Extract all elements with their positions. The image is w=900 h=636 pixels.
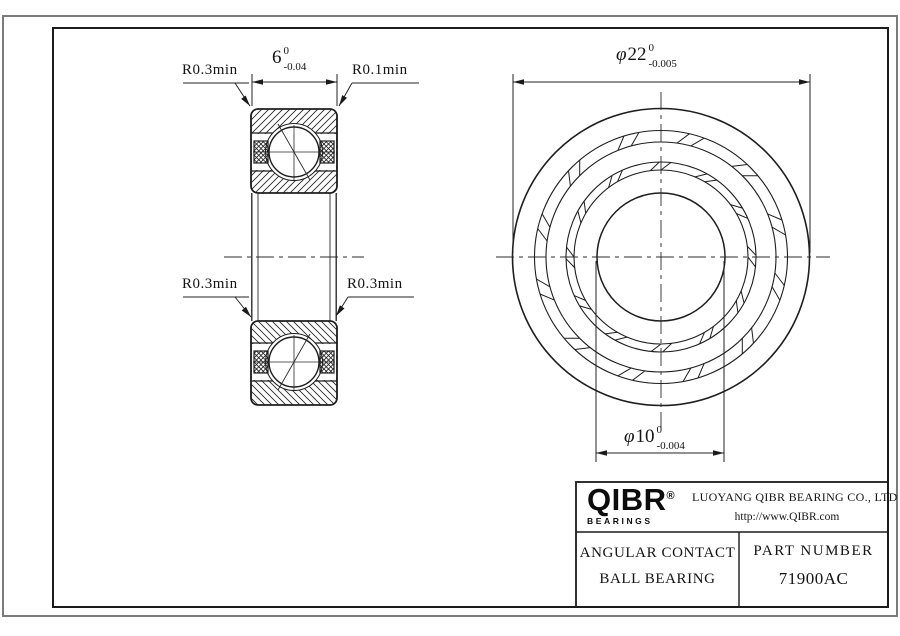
front-view [496, 92, 830, 428]
bore-diameter-tolerance: 0 -0.004 [657, 425, 685, 452]
section-view [224, 109, 364, 405]
part-number-value: 71900AC [739, 569, 888, 589]
bore-diameter-dimension: φ 10 0 -0.004 [624, 426, 685, 452]
brand-logo-sub: BEARINGS [587, 516, 675, 526]
drawing-sheet: R0.3min R0.1min R0.3min R0.3min 6 0 -0.0… [0, 0, 900, 636]
section-bottom-half [251, 321, 337, 405]
drawing-linework [0, 0, 900, 636]
fillet-label-mid-right: R0.3min [347, 276, 403, 293]
fillet-label-top-right: R0.1min [352, 62, 408, 79]
registered-mark: ® [667, 490, 676, 502]
outer-diameter-tolerance: 0 -0.005 [649, 43, 677, 70]
width-dimension: 6 0 -0.04 [272, 47, 306, 73]
bore-diameter-value: 10 [636, 426, 655, 448]
outer-diameter-value: 22 [628, 44, 647, 66]
product-name-line1: ANGULAR CONTACT [576, 545, 739, 562]
width-tolerance: 0 -0.04 [284, 46, 307, 73]
outer-diameter-dimension: φ 22 0 -0.005 [616, 44, 677, 70]
section-top-half [251, 109, 337, 193]
fillet-label-top-left: R0.3min [182, 62, 238, 79]
page-borders [3, 16, 897, 616]
diameter-symbol: φ [624, 426, 635, 448]
company-name: LUOYANG QIBR BEARING CO., LTD [692, 490, 882, 505]
company-website: http://www.QIBR.com [692, 511, 882, 523]
brand-logo: QIBR® BEARINGS [587, 485, 675, 526]
diameter-symbol: φ [616, 44, 627, 66]
width-value: 6 [272, 47, 282, 69]
product-name-line2: BALL BEARING [576, 571, 739, 588]
fillet-label-mid-left: R0.3min [182, 276, 238, 293]
part-number-label: PART NUMBER [739, 543, 888, 560]
